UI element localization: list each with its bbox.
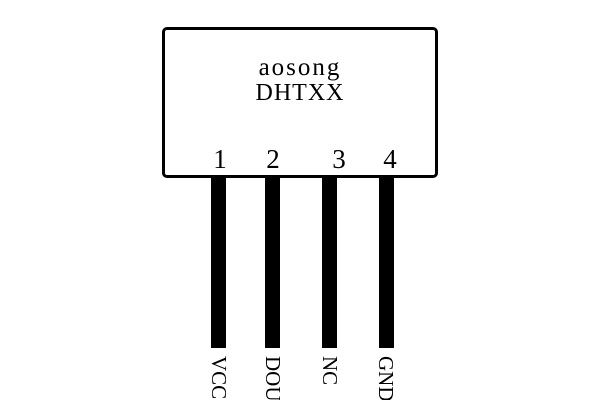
chip-body: aosong DHTXX 1 2 3 4 bbox=[162, 27, 438, 178]
pin-lead-3 bbox=[322, 175, 337, 348]
pin-number-4: 4 bbox=[383, 146, 397, 173]
pin-label-vcc: VCC bbox=[208, 356, 230, 399]
pin-number-2: 2 bbox=[266, 146, 280, 173]
pin-label-gnd: GND bbox=[375, 356, 397, 400]
pin-label-dout: DOUT bbox=[262, 356, 284, 400]
pin-label-nc: NC bbox=[319, 356, 341, 385]
pinout-diagram: aosong DHTXX 1 2 3 4 VCC DOUT NC GND bbox=[0, 0, 600, 400]
chip-model-label: DHTXX bbox=[165, 81, 435, 106]
chip-manufacturer-label: aosong bbox=[165, 54, 435, 81]
pin-lead-2 bbox=[265, 175, 280, 348]
pin-number-1: 1 bbox=[213, 146, 227, 173]
pin-lead-4 bbox=[379, 175, 394, 348]
chip-titles: aosong DHTXX bbox=[165, 54, 435, 106]
pin-number-3: 3 bbox=[332, 146, 346, 173]
pin-lead-1 bbox=[211, 175, 226, 348]
